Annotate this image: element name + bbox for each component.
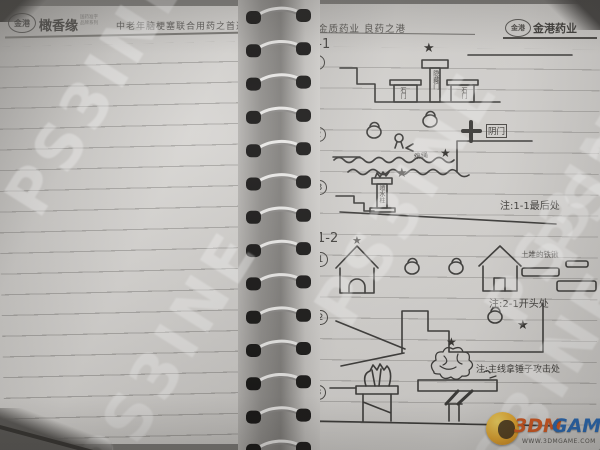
label-gate: 阴门 (486, 124, 507, 138)
star-icon: ★ (440, 147, 451, 159)
star-icon: ★ (517, 319, 529, 332)
label-pillar-mid: 隐藏门 (432, 70, 439, 90)
3dmgame-logo-text-game: GAME (552, 415, 600, 437)
note-hammer-spot: 注:主线拿锤子攻击处 (476, 362, 560, 375)
star-icon: ★ (396, 167, 408, 180)
note-2-1-start: 注:2-1开头处 (489, 295, 549, 310)
spiral-binding (238, 0, 320, 450)
star-icon: ★ (446, 336, 457, 348)
note-1-1-end: 注:1-1最后处 (500, 197, 560, 212)
right-brand-rule (503, 37, 597, 39)
label-pillar-right: 石门 (460, 87, 466, 99)
3dmgame-logo: 3DM GAME WWW.3DMGAME.COM (486, 411, 598, 448)
left-brand-subtext-line2: 品牌系列 (80, 21, 98, 27)
right-page-ruled-lines (304, 46, 600, 441)
level-title-1-2: 1-2 (317, 231, 338, 246)
shadow-top-left (0, 0, 60, 22)
3dmgame-logo-subtext: WWW.3DMGAME.COM (522, 438, 596, 445)
label-shovel: 土堆的铁锹 (521, 249, 559, 260)
left-brand-subtext: 国药准字 品牌系列 (80, 15, 98, 27)
left-brand-subtext-line1: 国药准字 (80, 15, 98, 21)
star-icon: ★ (352, 235, 362, 246)
label-tower: 喷水柱 (378, 185, 384, 203)
notebook-photo: 金港 橄香缘 国药准字 品牌系列 中老年脑梗塞联合用药之首选 良品 金质药业 良… (0, 0, 600, 450)
label-rope: 缆绳 (413, 150, 428, 162)
shadow-top-right (520, 0, 600, 30)
left-page-ruled-lines (0, 41, 255, 441)
star-icon: ★ (423, 42, 435, 55)
label-pillar-left: 石门 (399, 87, 405, 99)
left-page-slogan: 中老年脑梗塞联合用药之首选 (116, 19, 246, 32)
